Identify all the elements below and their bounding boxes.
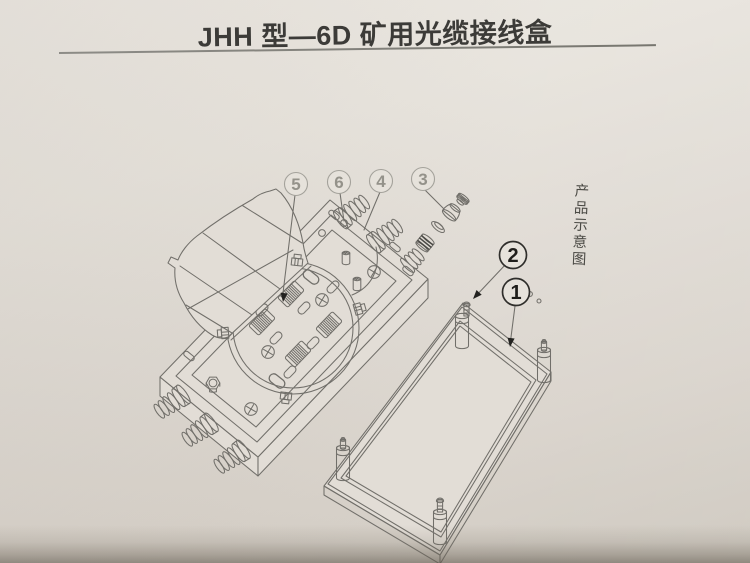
gland-seal-ring (430, 219, 446, 234)
exploded-diagram: 5 6 4 3 2 1 (151, 168, 551, 563)
side-label-vertical: 产品示意图 (567, 183, 592, 269)
exploded-gland-parts (399, 192, 470, 274)
svg-text:3: 3 (418, 170, 427, 189)
callout-2: 2 (500, 242, 527, 269)
callout-1: 1 (503, 279, 530, 306)
diagram-canvas: 5 6 4 3 2 1 (0, 0, 750, 563)
svg-text:5: 5 (291, 175, 300, 194)
callout-3: 3 (412, 168, 435, 191)
svg-text:1: 1 (510, 282, 521, 304)
svg-text:2: 2 (507, 245, 518, 267)
svg-text:6: 6 (334, 173, 343, 192)
svg-text:4: 4 (376, 172, 386, 191)
photo-of-product-sheet: JHH 型—6D 矿用光缆接线盒 (0, 0, 750, 563)
callout-6: 6 (328, 171, 351, 194)
callout-5: 5 (285, 173, 308, 196)
callout-4: 4 (370, 170, 393, 193)
